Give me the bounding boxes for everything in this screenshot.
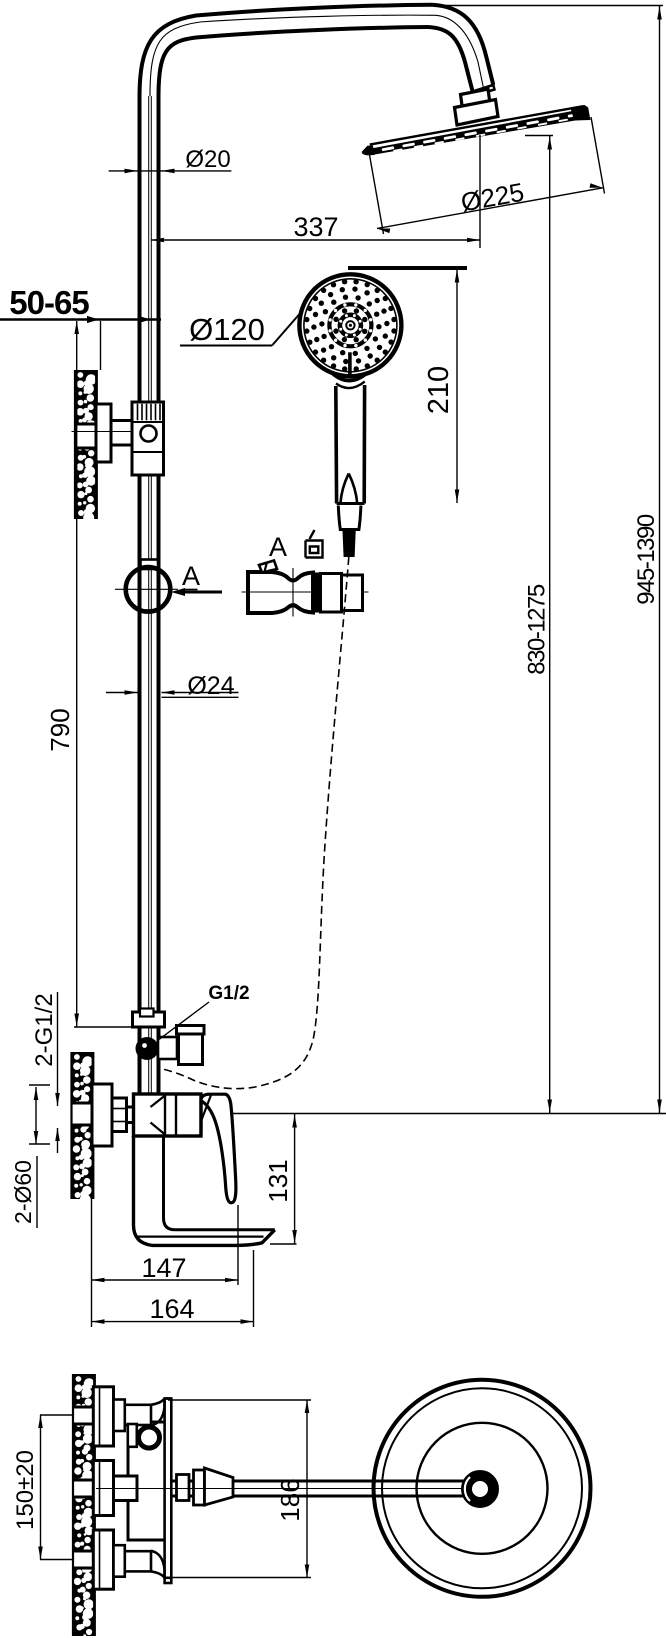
svg-text:50-65: 50-65	[9, 284, 89, 321]
svg-text:830-1275: 830-1275	[524, 584, 551, 675]
svg-text:A: A	[269, 532, 287, 562]
svg-text:Ø24: Ø24	[187, 672, 234, 700]
svg-text:164: 164	[149, 1294, 194, 1324]
svg-text:186: 186	[275, 1478, 305, 1521]
svg-text:210: 210	[423, 366, 455, 414]
svg-text:790: 790	[45, 708, 75, 751]
svg-text:Ø120: Ø120	[189, 312, 265, 347]
svg-text:G1/2: G1/2	[208, 983, 249, 1004]
svg-text:337: 337	[293, 212, 338, 242]
svg-text:150±20: 150±20	[12, 1450, 39, 1530]
svg-text:Ø20: Ø20	[185, 146, 230, 173]
svg-text:2-Ø60: 2-Ø60	[10, 1160, 36, 1224]
svg-text:A: A	[182, 561, 200, 591]
svg-text:131: 131	[263, 1159, 293, 1202]
svg-text:945-1390: 945-1390	[633, 514, 660, 605]
svg-text:147: 147	[141, 1253, 186, 1283]
svg-text:2-G1/2: 2-G1/2	[31, 993, 58, 1066]
